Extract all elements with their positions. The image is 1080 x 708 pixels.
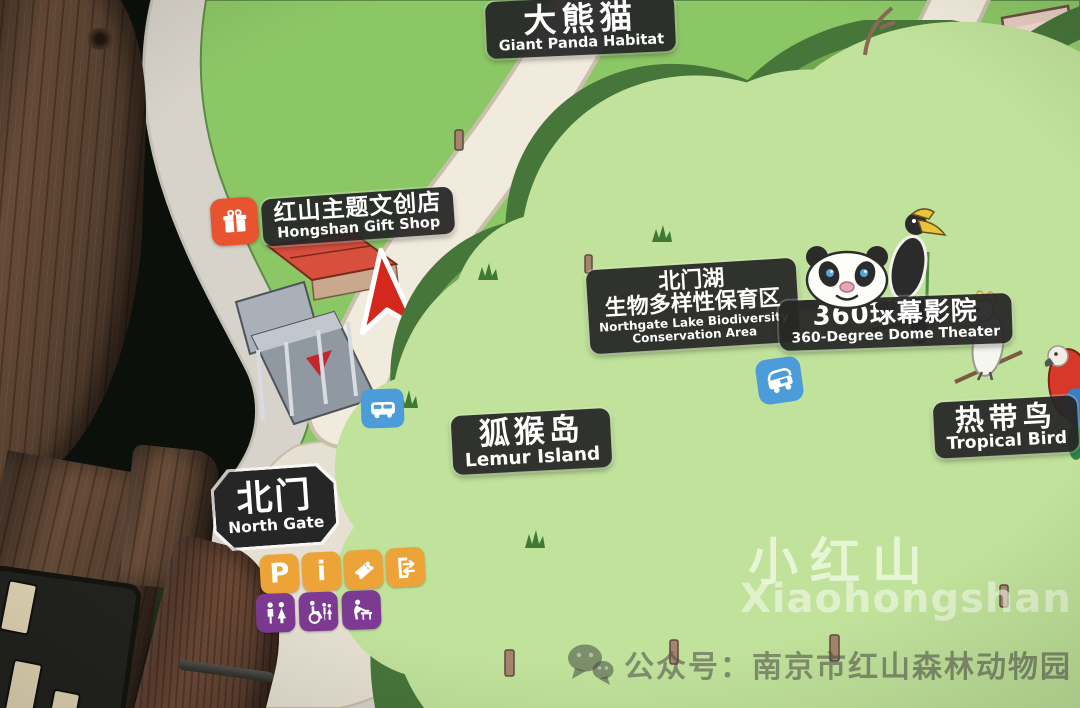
label-en: Tropical Bird xyxy=(946,430,1067,454)
sign-pane xyxy=(4,659,44,708)
ticket-icon xyxy=(343,549,384,590)
shuttle-bus-icon xyxy=(360,388,404,428)
baby-care-icon xyxy=(341,590,381,630)
gift-icon xyxy=(218,205,250,237)
photo-watermark: 公众号：南京市红山森林动物园 xyxy=(566,642,1072,686)
restroom-glyph xyxy=(261,599,290,628)
information-glyph: i xyxy=(316,558,327,585)
parking-glyph: P xyxy=(269,560,290,588)
baby-care-glyph xyxy=(347,596,376,625)
information-icon: i xyxy=(301,551,342,592)
sign-pane xyxy=(0,579,38,636)
parking-icon: P xyxy=(259,553,300,594)
label-tropical-bird: 热带鸟 Tropical Bird xyxy=(933,395,1080,458)
ticket-glyph xyxy=(349,555,378,584)
accessible-glyph xyxy=(304,597,333,626)
sign-pane xyxy=(45,688,81,708)
panda-face-illustration xyxy=(795,244,899,310)
north-gate-octagon: 北门 North Gate xyxy=(212,465,337,549)
accessible-restroom-icon xyxy=(298,591,338,631)
amenity-row-restrooms xyxy=(255,590,381,633)
zoo-map-sign-photo: 大熊猫 Giant Panda Habitat 红山主题文创店 Hongshan… xyxy=(0,0,1080,708)
shuttle-bus-glyph xyxy=(366,393,399,424)
sightseeing-cart-glyph xyxy=(760,361,798,399)
label-en: North Gate xyxy=(228,515,325,537)
wechat-icon xyxy=(566,642,614,686)
label-lemur-island: 狐猴岛 Lemur Island xyxy=(451,408,613,476)
braille-sign xyxy=(0,564,143,708)
restroom-icon xyxy=(255,593,295,633)
photo-watermark-text: 公众号：南京市红山森林动物园 xyxy=(624,642,1072,686)
entrance-exit-glyph xyxy=(391,552,420,581)
label-northgate-lake: 北门湖 生物多样性保育区 Northgate Lake Biodiversity… xyxy=(586,258,801,355)
label-zh: 北门 xyxy=(235,478,313,519)
label-north-gate: 北门 North Gate xyxy=(209,462,340,553)
entrance-exit-icon xyxy=(385,547,426,588)
sightseeing-cart-icon xyxy=(754,355,805,406)
gift-shop-badge xyxy=(209,196,259,246)
label-giant-panda-habitat: 大熊猫 Giant Panda Habitat xyxy=(485,0,677,59)
area-watermark-en: Xiaohongshan xyxy=(740,576,1072,622)
wood-knot xyxy=(86,28,114,50)
